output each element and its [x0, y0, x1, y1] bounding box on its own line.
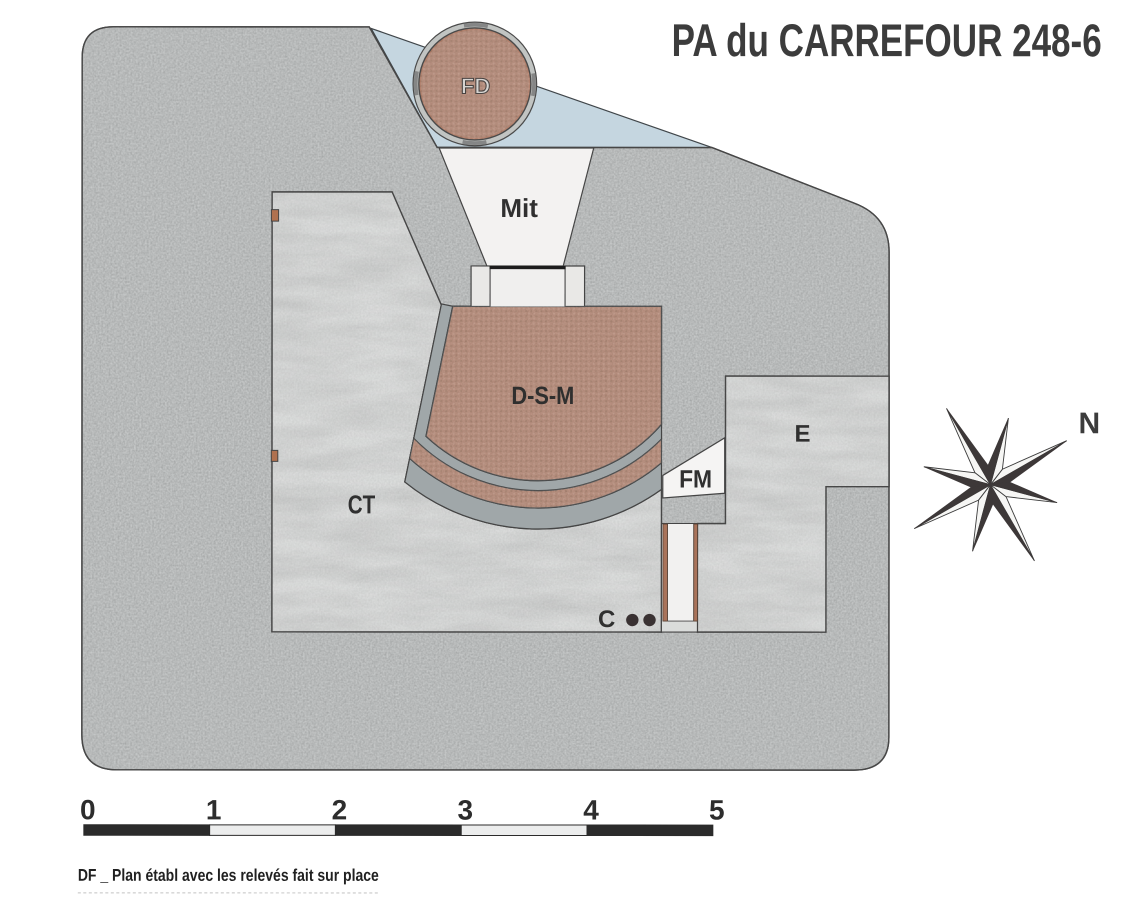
- svg-text:PA du CARREFOUR 248-6: PA du CARREFOUR 248-6: [672, 14, 1102, 66]
- svg-text:DF _ Plan établ avec les relev: DF _ Plan établ avec les relevés fait su…: [78, 866, 379, 885]
- svg-text:FM: FM: [679, 466, 712, 494]
- svg-text:C: C: [598, 606, 615, 633]
- svg-text:0: 0: [80, 794, 96, 825]
- svg-text:4: 4: [583, 795, 599, 826]
- svg-text:N: N: [1078, 407, 1100, 440]
- svg-text:2: 2: [332, 794, 348, 825]
- svg-text:3: 3: [457, 794, 473, 825]
- svg-text:5: 5: [709, 795, 725, 826]
- svg-text:D-S-M: D-S-M: [511, 382, 574, 410]
- svg-text:E: E: [794, 421, 810, 448]
- svg-text:1: 1: [206, 794, 222, 825]
- svg-text:FD: FD: [461, 73, 490, 98]
- svg-text:Mit: Mit: [500, 193, 538, 223]
- svg-text:CT: CT: [348, 489, 376, 519]
